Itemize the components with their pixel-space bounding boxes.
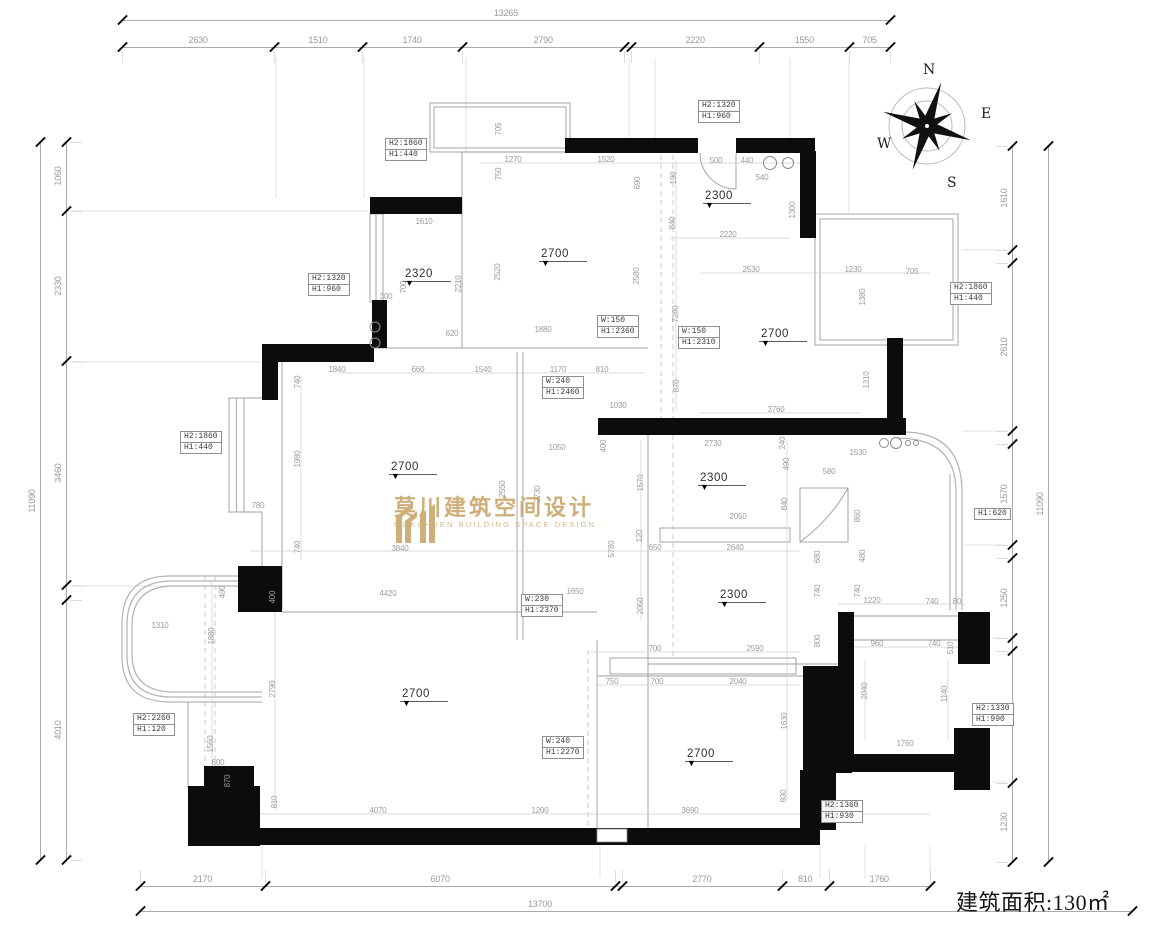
watermark-logo-icon <box>394 496 436 544</box>
dimension-text: 1230 <box>845 266 862 274</box>
extension-line <box>930 870 931 882</box>
dimension-text: 750 <box>606 678 619 686</box>
dimension-text: 2050 <box>637 598 645 615</box>
dimension-text: 540 <box>756 174 769 182</box>
dimension-text: 1610 <box>416 218 433 226</box>
dimension-text: 690 <box>634 177 642 190</box>
dimension-text: 870 <box>673 380 681 393</box>
spec-label-line: H1:2360 <box>597 326 639 338</box>
dimension-text: 750 <box>495 168 503 181</box>
spec-label-box: H1:620 <box>974 509 1011 520</box>
dimension-text: 500 <box>710 157 723 165</box>
dimension-text: 740 <box>814 585 822 598</box>
room-ceiling-label: 2300▼ <box>698 472 746 486</box>
extension-line <box>622 870 623 882</box>
spec-label-line: H1:960 <box>308 284 350 296</box>
dimension-text: 1050 <box>549 444 566 452</box>
dimension-text: 2790 <box>269 681 277 698</box>
spec-label-line: H2:1860 <box>950 282 992 294</box>
dimension-text: 400 <box>600 440 608 453</box>
dimension-text: 2730 <box>705 440 722 448</box>
extension-line <box>782 870 783 882</box>
spec-label-line: H1:990 <box>972 714 1014 726</box>
dimension-text: 1560 <box>207 736 215 753</box>
dimension-number: 4010 <box>53 720 63 741</box>
dimension-text: 2640 <box>727 544 744 552</box>
dimension-total: 11090 <box>1035 491 1045 516</box>
dimension-text: 700 <box>649 645 662 653</box>
spec-label-box: H2:2260H1:120 <box>133 714 175 736</box>
dimension-number: 1250 <box>999 587 1009 608</box>
ceiling-marker-icon: ▼ <box>705 201 714 210</box>
extension-line <box>996 250 1008 251</box>
dimension-number: 810 <box>797 874 813 884</box>
compass-e-label: E <box>981 106 991 122</box>
dimension-text: 1030 <box>610 402 627 410</box>
extension-line <box>849 51 850 63</box>
ceiling-marker-icon: ▼ <box>391 472 400 481</box>
spec-label-box: H2:1860H1:440 <box>180 432 222 454</box>
dimension-text: 960 <box>871 640 884 648</box>
dimension-text: 810 <box>596 366 609 374</box>
dimension-text: 4420 <box>380 590 397 598</box>
extension-line <box>362 51 363 63</box>
dimension-number: 1060 <box>53 166 63 187</box>
dimension-text: 1300 <box>789 202 797 219</box>
spec-label-box: W:150H1:2310 <box>678 327 720 349</box>
building-area-label: 建筑面积:130㎡ <box>956 885 1110 917</box>
extension-line <box>996 263 1008 264</box>
compass-w-label: W <box>877 136 892 152</box>
dimension-text: 700 <box>651 678 664 686</box>
dimension-text: 780 <box>252 502 265 510</box>
extension-line <box>274 51 275 63</box>
spec-label-box: H2:1320H1:960 <box>698 101 740 123</box>
dimension-text: 240 <box>779 437 787 450</box>
dimension-total-line <box>40 142 41 860</box>
room-ceiling-label: 2300▼ <box>703 190 751 204</box>
dimension-text: 1220 <box>864 597 881 605</box>
spec-label-line: H1:2310 <box>678 337 720 349</box>
dimension-text: 480 <box>859 550 867 563</box>
spec-label-line: H1:440 <box>385 149 427 161</box>
dimension-line <box>140 886 930 887</box>
dimension-text: 1760 <box>897 740 914 748</box>
room-ceiling-label: 2300▼ <box>718 589 766 603</box>
dimension-text: 1380 <box>859 289 867 306</box>
spec-label-line: H1:120 <box>133 724 175 736</box>
dimension-text: 740 <box>294 541 302 554</box>
ceiling-marker-icon: ▼ <box>402 699 411 708</box>
dimension-text: 2210 <box>455 276 463 293</box>
extension-line <box>996 862 1008 863</box>
extension-line <box>140 870 141 882</box>
dimension-number: 2220 <box>685 35 706 45</box>
dimension-number: 1570 <box>999 484 1009 505</box>
dimension-text: 190 <box>670 172 678 185</box>
dimension-text: 2040 <box>730 678 747 686</box>
dimension-text: 840 <box>669 217 677 230</box>
dimension-text: 930 <box>780 790 788 803</box>
ceiling-marker-icon: ▼ <box>761 339 770 348</box>
extension-line <box>265 870 266 882</box>
ceiling-marker-icon: ▼ <box>405 279 414 288</box>
dimension-text: 1980 <box>294 451 302 468</box>
dimension-text: 660 <box>412 366 425 374</box>
dimension-text: 2530 <box>743 266 760 274</box>
extension-line <box>462 51 463 63</box>
room-ceiling-label: 2320▼ <box>403 268 451 282</box>
extension-line <box>996 558 1008 559</box>
dimension-text: 2050 <box>730 513 747 521</box>
dimension-text: 3840 <box>392 545 409 553</box>
dimension-text: 1310 <box>152 622 169 630</box>
dimension-text: 740 <box>926 598 939 606</box>
room-ceiling-label: 2700▼ <box>759 328 807 342</box>
dimension-text: 740 <box>854 585 862 598</box>
dimension-text: 1520 <box>598 156 615 164</box>
dimension-text: 5780 <box>608 541 616 558</box>
spec-label-box: H2:1320H1:960 <box>308 274 350 296</box>
dimension-text: 490 <box>219 586 227 599</box>
dimension-text: 1540 <box>475 366 492 374</box>
dimension-number: 2630 <box>188 35 209 45</box>
dimension-total: 11090 <box>27 488 37 513</box>
dimension-text: 3760 <box>768 406 785 414</box>
dimension-text: 1270 <box>505 156 522 164</box>
spec-label-line: H2:1860 <box>180 431 222 443</box>
spec-label-line: H2:2260 <box>133 713 175 725</box>
dimension-text: 870 <box>224 775 232 788</box>
extension-line <box>70 585 82 586</box>
dimension-text: 1650 <box>567 588 584 596</box>
dimension-total: 13700 <box>527 899 553 909</box>
dimension-number: 1760 <box>869 874 890 884</box>
dimension-total-line <box>122 20 890 21</box>
extension-line <box>996 444 1008 445</box>
spec-label-line: H2:1320 <box>308 273 350 285</box>
dimension-text: 580 <box>823 468 836 476</box>
dimension-total-line <box>1048 146 1049 862</box>
dimension-text: 2580 <box>633 268 641 285</box>
room-ceiling-label: 2700▼ <box>389 461 437 475</box>
dimension-text: 1840 <box>329 366 346 374</box>
dimension-text: 2220 <box>720 231 737 239</box>
dimension-text: 440 <box>741 157 754 165</box>
spec-label-box: W:150H1:2360 <box>597 316 639 338</box>
dimension-line <box>66 142 67 860</box>
floorplan-page: 2630151017402790222015507051326521706070… <box>0 0 1150 945</box>
dimension-number: 1230 <box>999 812 1009 833</box>
dimension-text: 840 <box>781 498 789 511</box>
dimension-number: 3460 <box>53 463 63 484</box>
dimension-text: 680 <box>814 551 822 564</box>
room-ceiling-label: 2700▼ <box>685 748 733 762</box>
dimension-text: 620 <box>446 330 459 338</box>
dimension-text: 1630 <box>781 713 789 730</box>
dimension-text: 510 <box>947 642 955 655</box>
dimension-text: 2520 <box>494 264 502 281</box>
spec-label-box: W:230H1:2370 <box>521 595 563 617</box>
extension-line <box>615 870 616 882</box>
compass-rose: N E W S <box>865 56 1005 196</box>
dimension-text: 1140 <box>941 686 949 702</box>
extension-line <box>70 860 82 861</box>
dimension-text: 600 <box>212 759 225 767</box>
dimension-number: 1510 <box>307 35 328 45</box>
watermark: 莫川建筑空间设计 MOKCHUEN BUILDING SPACE DESIGN <box>394 496 596 529</box>
dimension-number: 705 <box>861 35 877 45</box>
dimension-text: 1530 <box>850 449 867 457</box>
ceiling-marker-icon: ▼ <box>541 259 550 268</box>
dimension-text: 400 <box>269 591 277 604</box>
extension-line <box>624 51 625 63</box>
dimension-text: 740 <box>928 640 941 648</box>
spec-label-line: H1:440 <box>950 293 992 305</box>
dimension-number: 1550 <box>794 35 815 45</box>
dimension-text: 4070 <box>370 807 387 815</box>
dimension-text: 300 <box>380 293 393 301</box>
spec-label-line: H2:1860 <box>385 138 427 150</box>
dimension-number: 2330 <box>53 275 63 296</box>
dimension-text: 705 <box>906 268 919 276</box>
dimension-text: 3690 <box>682 807 699 815</box>
compass-n-label: N <box>923 62 935 78</box>
dimension-text: 705 <box>495 123 503 136</box>
extension-line <box>996 651 1008 652</box>
dimension-text: 1880 <box>535 326 552 334</box>
spec-label-line: H2:1320 <box>698 100 740 112</box>
spec-label-line: H1:2370 <box>521 605 563 617</box>
extension-line <box>829 870 830 882</box>
extension-line <box>122 51 123 63</box>
spec-label-line: H1:440 <box>180 442 222 454</box>
spec-label-line: H2:1330 <box>972 703 1014 715</box>
dimension-text: 1200 <box>532 807 549 815</box>
dimension-text: 7260 <box>672 306 680 323</box>
dimension-text: 2590 <box>747 645 764 653</box>
dimension-number: 2610 <box>999 336 1009 357</box>
spec-label-box: H2:1360H1:930 <box>821 801 863 823</box>
room-ceiling-label: 2700▼ <box>400 688 448 702</box>
extension-line <box>70 142 82 143</box>
dimension-text: 2040 <box>861 683 869 700</box>
extension-line <box>996 783 1008 784</box>
spec-label-line: H2:1360 <box>821 800 863 812</box>
dimension-text: 650 <box>649 544 662 552</box>
spec-label-line: H1:930 <box>821 811 863 823</box>
dimension-number: 2170 <box>192 874 213 884</box>
extension-line <box>996 545 1008 546</box>
dimension-text: 1170 <box>550 366 566 374</box>
dimension-number: 2770 <box>691 874 712 884</box>
dimension-text: 740 <box>294 376 302 389</box>
dimension-text: 80 <box>953 598 962 606</box>
dimension-text: 120 <box>636 530 644 543</box>
dimension-text: 1880 <box>208 628 216 645</box>
dimension-text: 490 <box>783 458 791 471</box>
ceiling-marker-icon: ▼ <box>700 483 709 492</box>
extension-line <box>996 638 1008 639</box>
extension-line <box>759 51 760 63</box>
spec-label-box: W:240H1:2270 <box>542 737 584 759</box>
dimension-text: 860 <box>854 510 862 523</box>
spec-label-box: H2:1860H1:440 <box>385 139 427 161</box>
dimension-number: 1740 <box>401 35 422 45</box>
spec-label-line: H1:2270 <box>542 747 584 759</box>
extension-line <box>70 211 82 212</box>
spec-label-line: H1:960 <box>698 111 740 123</box>
extension-line <box>631 51 632 63</box>
ceiling-marker-icon: ▼ <box>687 759 696 768</box>
ceiling-marker-icon: ▼ <box>720 600 729 609</box>
dimension-text: 1570 <box>637 475 645 492</box>
extension-line <box>70 600 82 601</box>
extension-line <box>70 361 82 362</box>
extension-line <box>996 431 1008 432</box>
dimension-number: 2790 <box>533 35 554 45</box>
spec-label-box: H2:1330H1:990 <box>972 704 1014 726</box>
dimension-line <box>122 47 890 48</box>
dimension-text: 1310 <box>863 372 871 389</box>
room-ceiling-label: 2700▼ <box>539 248 587 262</box>
spec-label-box: W:240H1:2460 <box>542 377 584 399</box>
dimension-number: 6070 <box>430 874 451 884</box>
spec-label-box: H2:1860H1:440 <box>950 283 992 305</box>
compass-s-label: S <box>947 175 957 191</box>
spec-label-line: H1:620 <box>974 508 1011 520</box>
dimension-text: 800 <box>814 635 822 648</box>
dimension-text: 810 <box>271 796 279 809</box>
dimension-line <box>1012 146 1013 862</box>
spec-label-line: H1:2460 <box>542 387 584 399</box>
dimension-total: 13265 <box>493 8 519 18</box>
